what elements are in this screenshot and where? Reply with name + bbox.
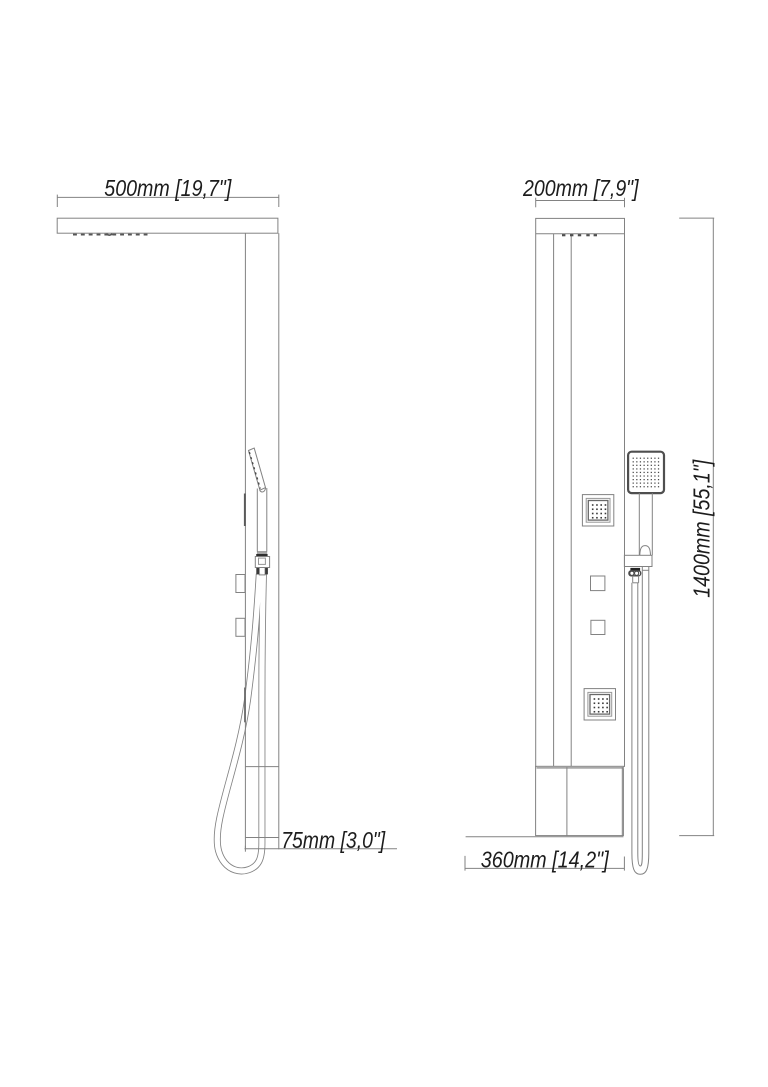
svg-text:360mm [14,2"]: 360mm [14,2"]	[481, 847, 610, 873]
svg-text:200mm [7,9"]: 200mm [7,9"]	[522, 175, 639, 201]
svg-text:75mm [3,0"]: 75mm [3,0"]	[281, 827, 386, 853]
svg-text:500mm [19,7"]: 500mm [19,7"]	[104, 175, 232, 201]
svg-text:1400mm [55,1"]: 1400mm [55,1"]	[689, 459, 715, 598]
